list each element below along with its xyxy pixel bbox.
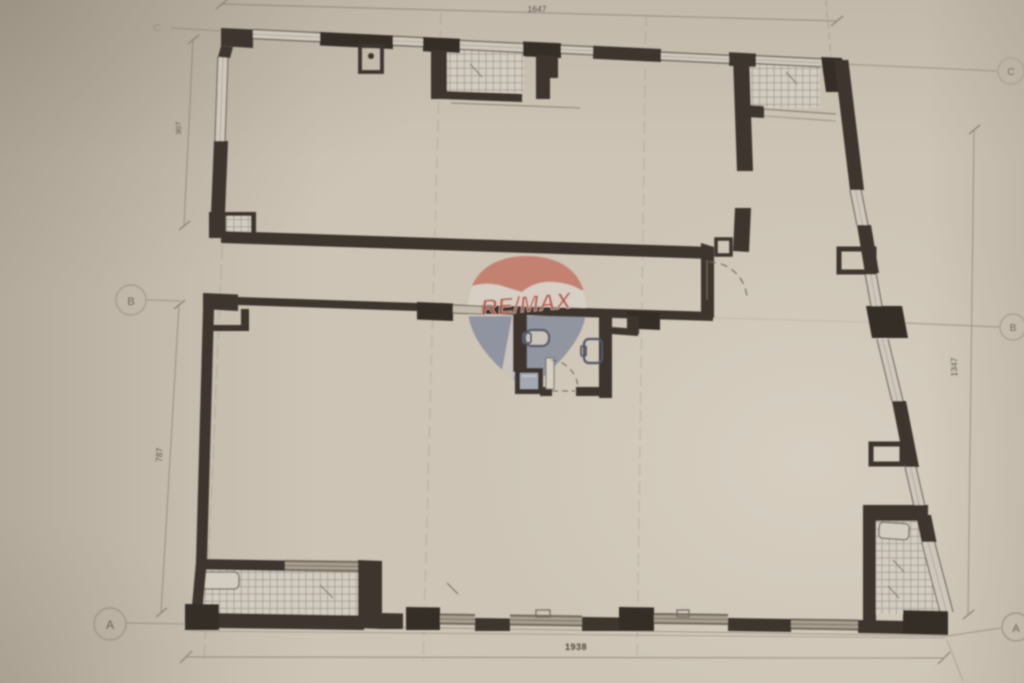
svg-text:787: 787 — [154, 447, 165, 462]
svg-text:C: C — [153, 23, 160, 34]
svg-text:907: 907 — [174, 122, 183, 135]
svg-text:A: A — [1012, 623, 1020, 635]
svg-text:B: B — [127, 296, 134, 308]
svg-text:1938: 1938 — [565, 642, 587, 652]
svg-text:B: B — [1010, 323, 1017, 334]
svg-text:C: C — [1007, 67, 1014, 78]
svg-text:1647: 1647 — [528, 4, 547, 14]
svg-text:1347: 1347 — [949, 357, 959, 376]
svg-text:A: A — [106, 618, 114, 632]
